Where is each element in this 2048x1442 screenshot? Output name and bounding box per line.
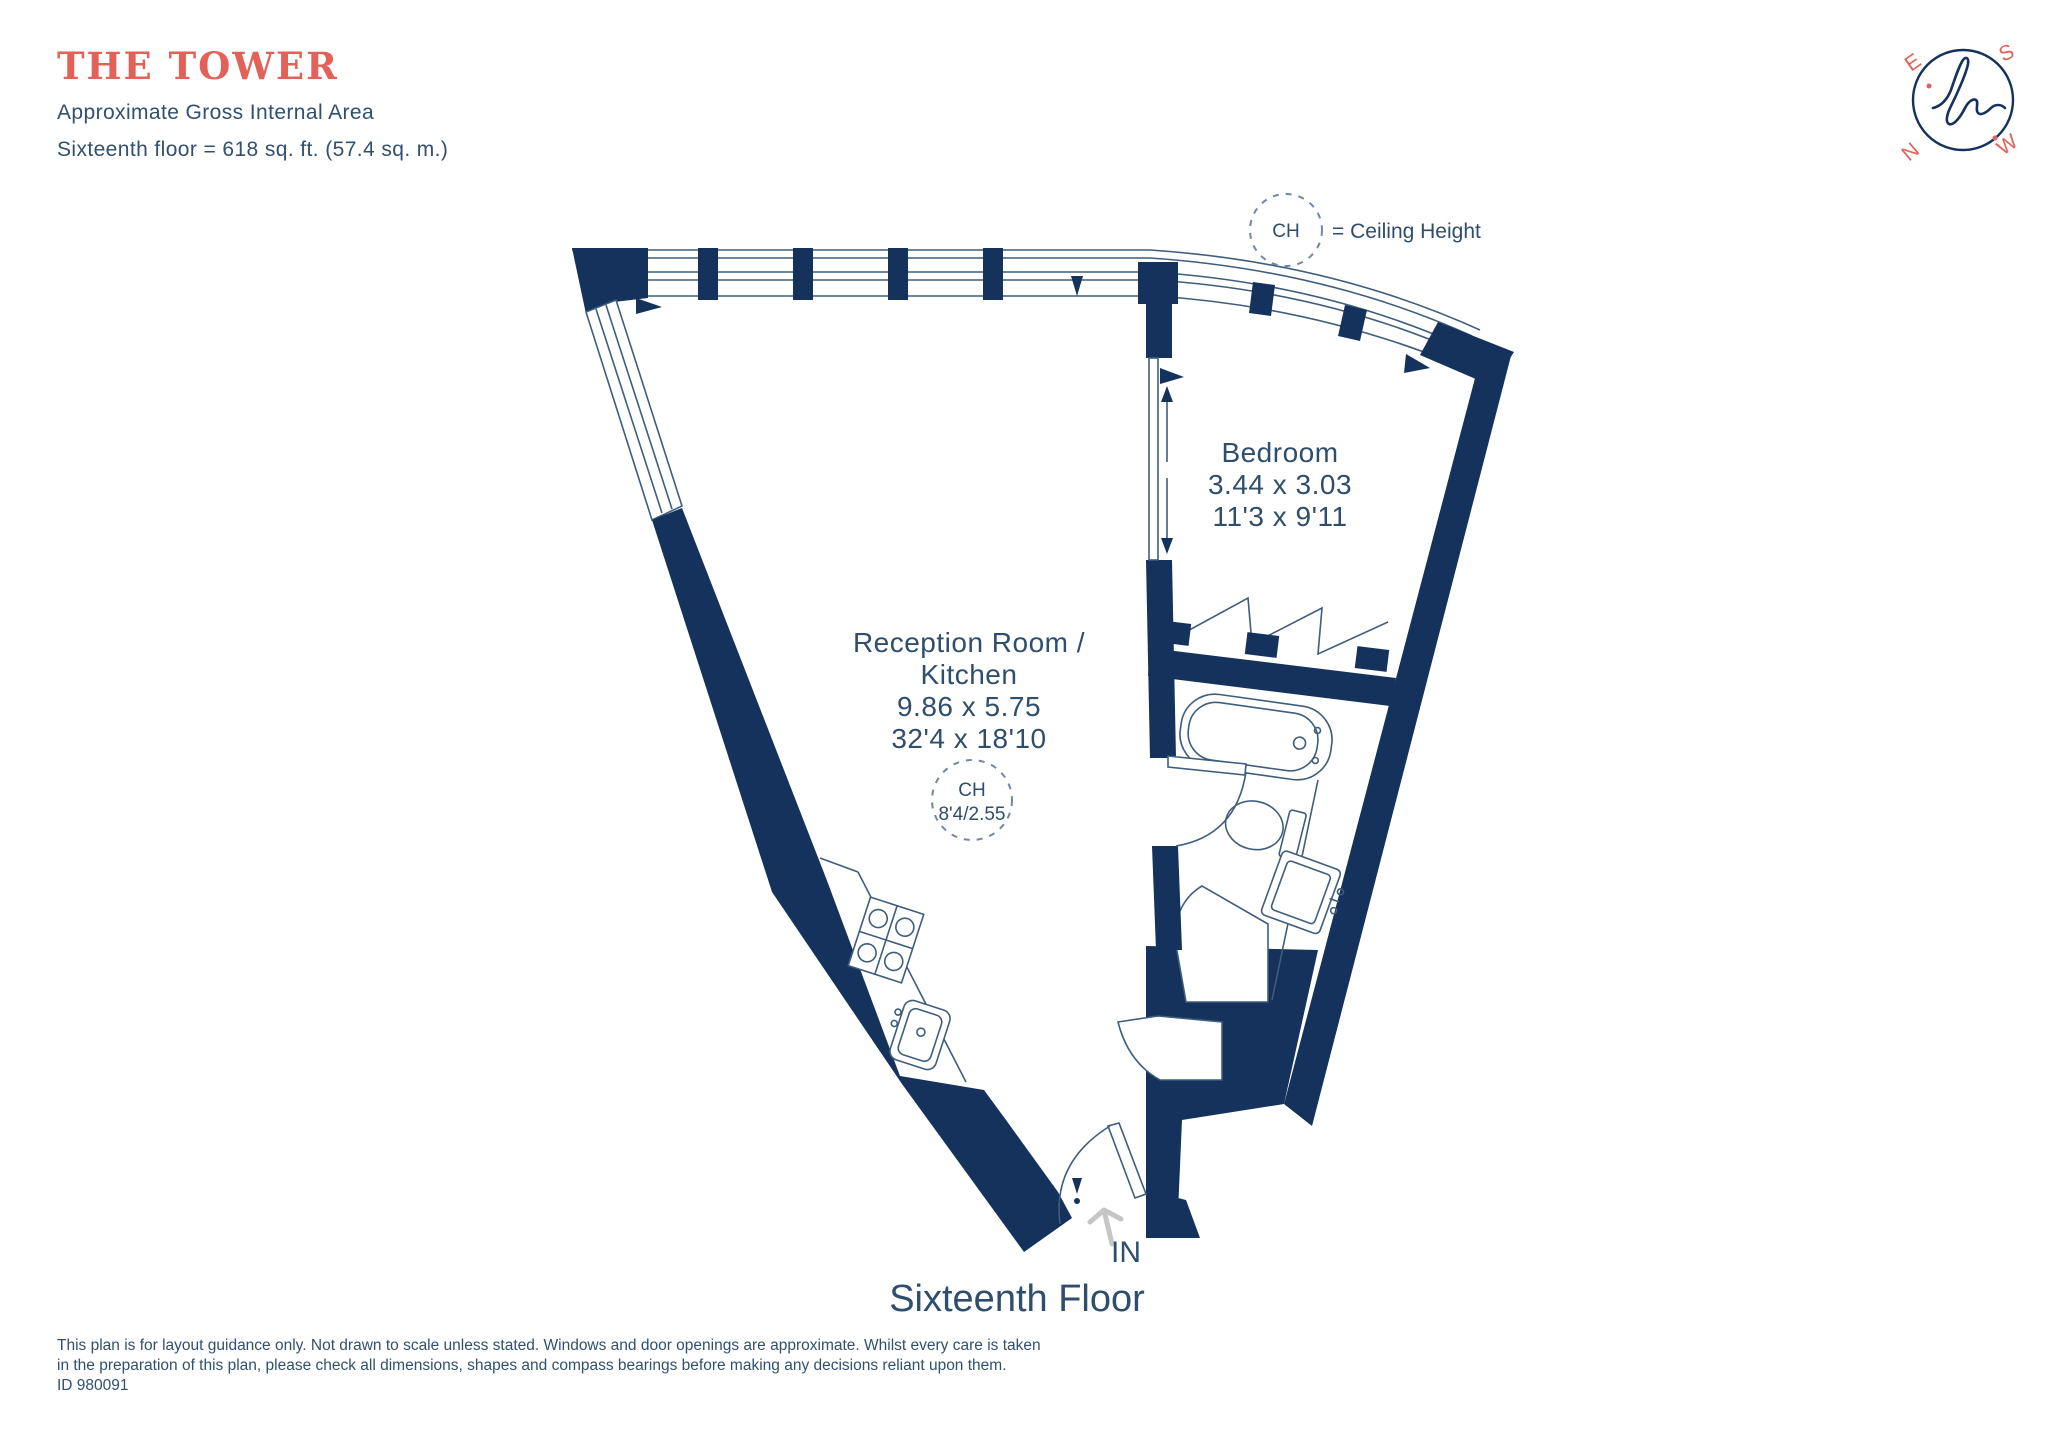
hall-door-swing	[1118, 1016, 1222, 1080]
window-band	[572, 248, 1514, 386]
bedroom-name: Bedroom	[1221, 437, 1338, 468]
sliding-door	[1149, 358, 1173, 560]
bathroom-hall-door-swing	[1174, 886, 1268, 1002]
reception-ch-abbr: CH	[958, 780, 985, 801]
floorplan-svg: IN Reception Room / Kitchen 9.86 x 5.75 …	[0, 0, 2048, 1442]
ch-legend-abbr: CH	[1272, 221, 1299, 242]
compass-south: S	[1995, 40, 2017, 67]
bedroom-dims-metric: 3.44 x 3.03	[1208, 469, 1352, 500]
compass-north: N	[1897, 138, 1923, 165]
floorplan-page: THE TOWER Approximate Gross Internal Are…	[0, 0, 2048, 1442]
left-window	[586, 300, 682, 520]
entry-right-jamb	[1146, 1190, 1200, 1238]
entrance-label: IN	[1111, 1236, 1141, 1269]
bedroom-dims-imperial: 11'3 x 9'11	[1212, 501, 1347, 532]
toilet	[1220, 795, 1306, 860]
compass-west: W	[1993, 130, 2023, 160]
bedroom-label: Bedroom 3.44 x 3.03 11'3 x 9'11	[1208, 437, 1352, 532]
window-mullions	[698, 248, 1367, 341]
disclaimer-line2: in the preparation of this plan, please …	[57, 1356, 1041, 1376]
reception-ch-value: 8'4/2.55	[938, 804, 1005, 825]
reception-name-line1: Reception Room /	[853, 627, 1085, 658]
plan-id: ID 980091	[57, 1376, 1041, 1396]
opening-markers	[636, 276, 1430, 384]
ch-legend: CH = Ceiling Height	[1250, 194, 1481, 266]
ch-legend-meaning: = Ceiling Height	[1332, 220, 1481, 243]
door-marker-icon	[1072, 1178, 1082, 1194]
reception-name-line2: Kitchen	[921, 659, 1018, 690]
reception-dims-metric: 9.86 x 5.75	[897, 691, 1041, 722]
disclaimer: This plan is for layout guidance only. N…	[57, 1336, 1041, 1396]
kitchen-hob	[848, 897, 924, 983]
compass-icon: E S N W	[1897, 40, 2022, 166]
reception-dims-imperial: 32'4 x 18'10	[891, 723, 1046, 754]
disclaimer-line1: This plan is for layout guidance only. N…	[57, 1336, 1041, 1356]
compass-monogram	[1933, 58, 2005, 124]
floor-label: Sixteenth Floor	[0, 1278, 2048, 1321]
partition-wall	[1138, 262, 1182, 950]
reception-label: Reception Room / Kitchen 9.86 x 5.75 32'…	[853, 627, 1085, 840]
